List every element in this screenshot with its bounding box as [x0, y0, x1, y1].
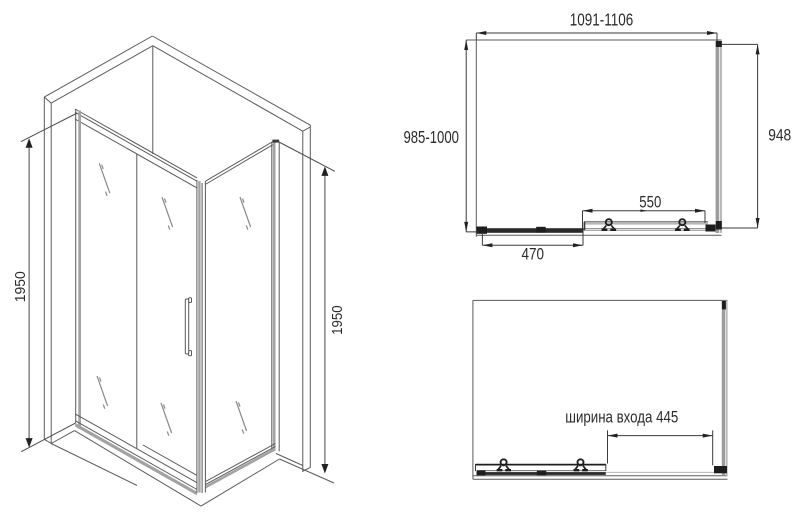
- svg-text:1091-1106: 1091-1106: [570, 9, 634, 29]
- svg-text:985-1000: 985-1000: [403, 127, 459, 147]
- svg-text:1950: 1950: [13, 271, 29, 302]
- svg-text:1950: 1950: [330, 305, 346, 335]
- svg-text:470: 470: [522, 246, 545, 264]
- svg-text:ширина входа 445: ширина входа 445: [565, 408, 678, 426]
- svg-text:550: 550: [639, 194, 661, 212]
- svg-text:948: 948: [768, 126, 791, 145]
